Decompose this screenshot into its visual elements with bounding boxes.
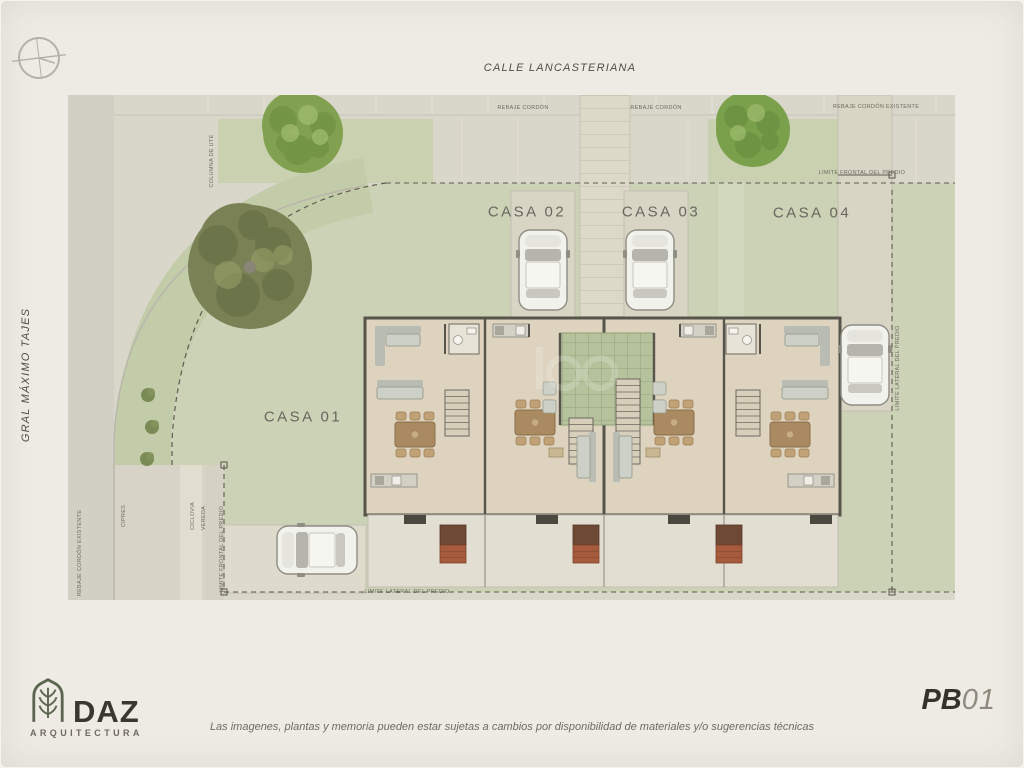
car-casa-03 (623, 230, 677, 310)
plan-sheet: CALLE LANCASTERIANA GRAL MÁXIMO TAJES (0, 0, 1024, 768)
rear-patios (368, 515, 838, 587)
footpath (205, 465, 224, 600)
car-casa-01 (277, 523, 357, 577)
site-plan-drawing (68, 95, 955, 600)
walk-casa-04 (718, 183, 744, 325)
tree (716, 95, 790, 167)
north-compass-icon (10, 34, 68, 86)
street-label-left: GRAL MÁXIMO TAJES (20, 290, 36, 460)
sheet-code: PB01 (921, 684, 996, 717)
sheet-code-number: 01 (962, 684, 996, 716)
central-walkway (580, 95, 630, 335)
bike-lane (180, 465, 202, 600)
road (68, 95, 114, 600)
car-casa-02 (516, 230, 570, 310)
arch-leaf-icon (30, 678, 66, 724)
street-label-top: CALLE LANCASTERIANA (360, 62, 760, 74)
sheet-code-prefix: PB (921, 684, 961, 716)
disclaimer-text: Las imagenes, plantas y memoria pueden e… (0, 721, 1024, 733)
car-casa-04 (838, 325, 892, 405)
